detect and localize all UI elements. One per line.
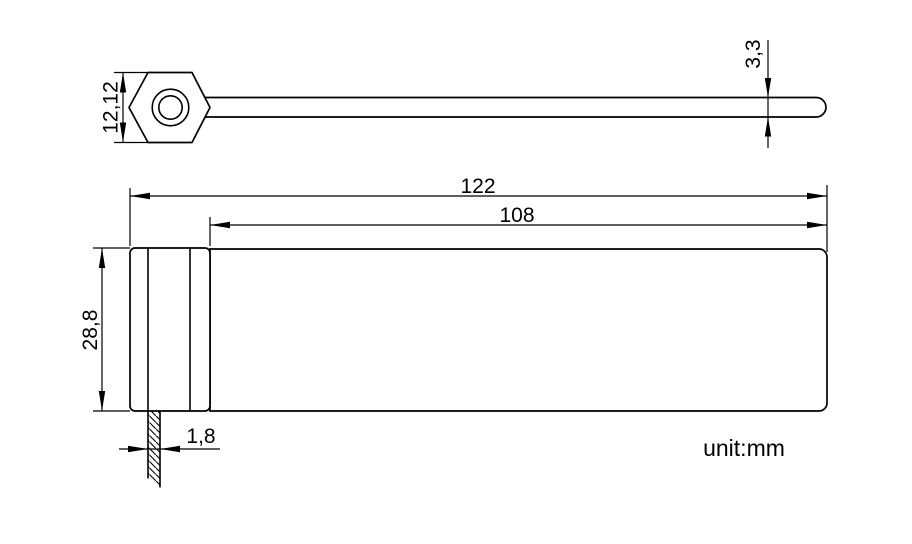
arrowhead-left <box>210 222 230 228</box>
dimension-strap-length: 108 <box>210 204 827 246</box>
arrowhead-up <box>765 117 771 137</box>
lock-body-outline <box>130 248 210 411</box>
arrowhead-right <box>128 446 148 452</box>
dimension-label-tail-width: 1,8 <box>186 425 215 448</box>
dimension-label-strap-thickness: 3,3 <box>742 39 765 68</box>
dimension-label-strap-length: 108 <box>499 204 534 227</box>
dimension-tail-width: 1,8 <box>119 425 220 452</box>
arrowhead-right <box>807 193 827 199</box>
dimension-label-body-height: 28,8 <box>79 310 102 351</box>
arrowhead-down <box>765 78 771 98</box>
dimension-label-overall-length: 122 <box>460 175 495 198</box>
arrowhead-left <box>160 446 180 452</box>
strap-plate-outline <box>210 249 827 411</box>
dimension-body-height: 28,8 <box>79 248 130 411</box>
seal-dimension-drawing: 12,12 3,3 <box>0 0 912 544</box>
strap-profile-outline <box>203 98 826 118</box>
arrowhead-up <box>99 248 105 268</box>
side-view: 12,12 3,3 <box>100 39 826 148</box>
dimension-strap-thickness: 3,3 <box>742 39 771 148</box>
technical-drawing-canvas: 12,12 3,3 <box>0 0 912 544</box>
arrowhead-down <box>99 391 105 411</box>
dimension-overall-length: 122 <box>130 175 827 252</box>
hexagon-head-outline <box>129 73 210 143</box>
unit-note: unit:mm <box>703 435 785 461</box>
arrowhead-right <box>807 222 827 228</box>
arrowhead-left <box>130 193 150 199</box>
dimension-label-head-height: 12,12 <box>100 81 123 134</box>
